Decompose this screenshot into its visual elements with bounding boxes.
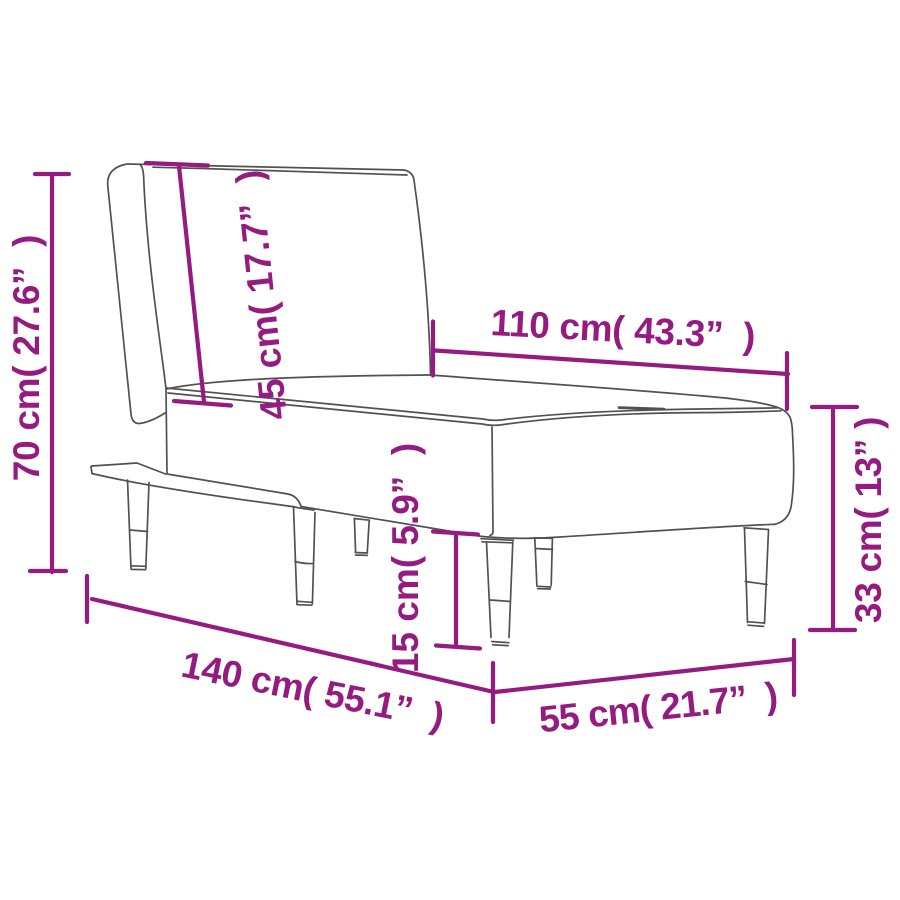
svg-text:15 cm( 5.9” ): 15 cm( 5.9” ) [385, 443, 426, 673]
svg-text:70 cm( 27.6” ): 70 cm( 27.6” ) [6, 235, 47, 481]
svg-text:33 cm( 13” ): 33 cm( 13” ) [848, 417, 889, 623]
